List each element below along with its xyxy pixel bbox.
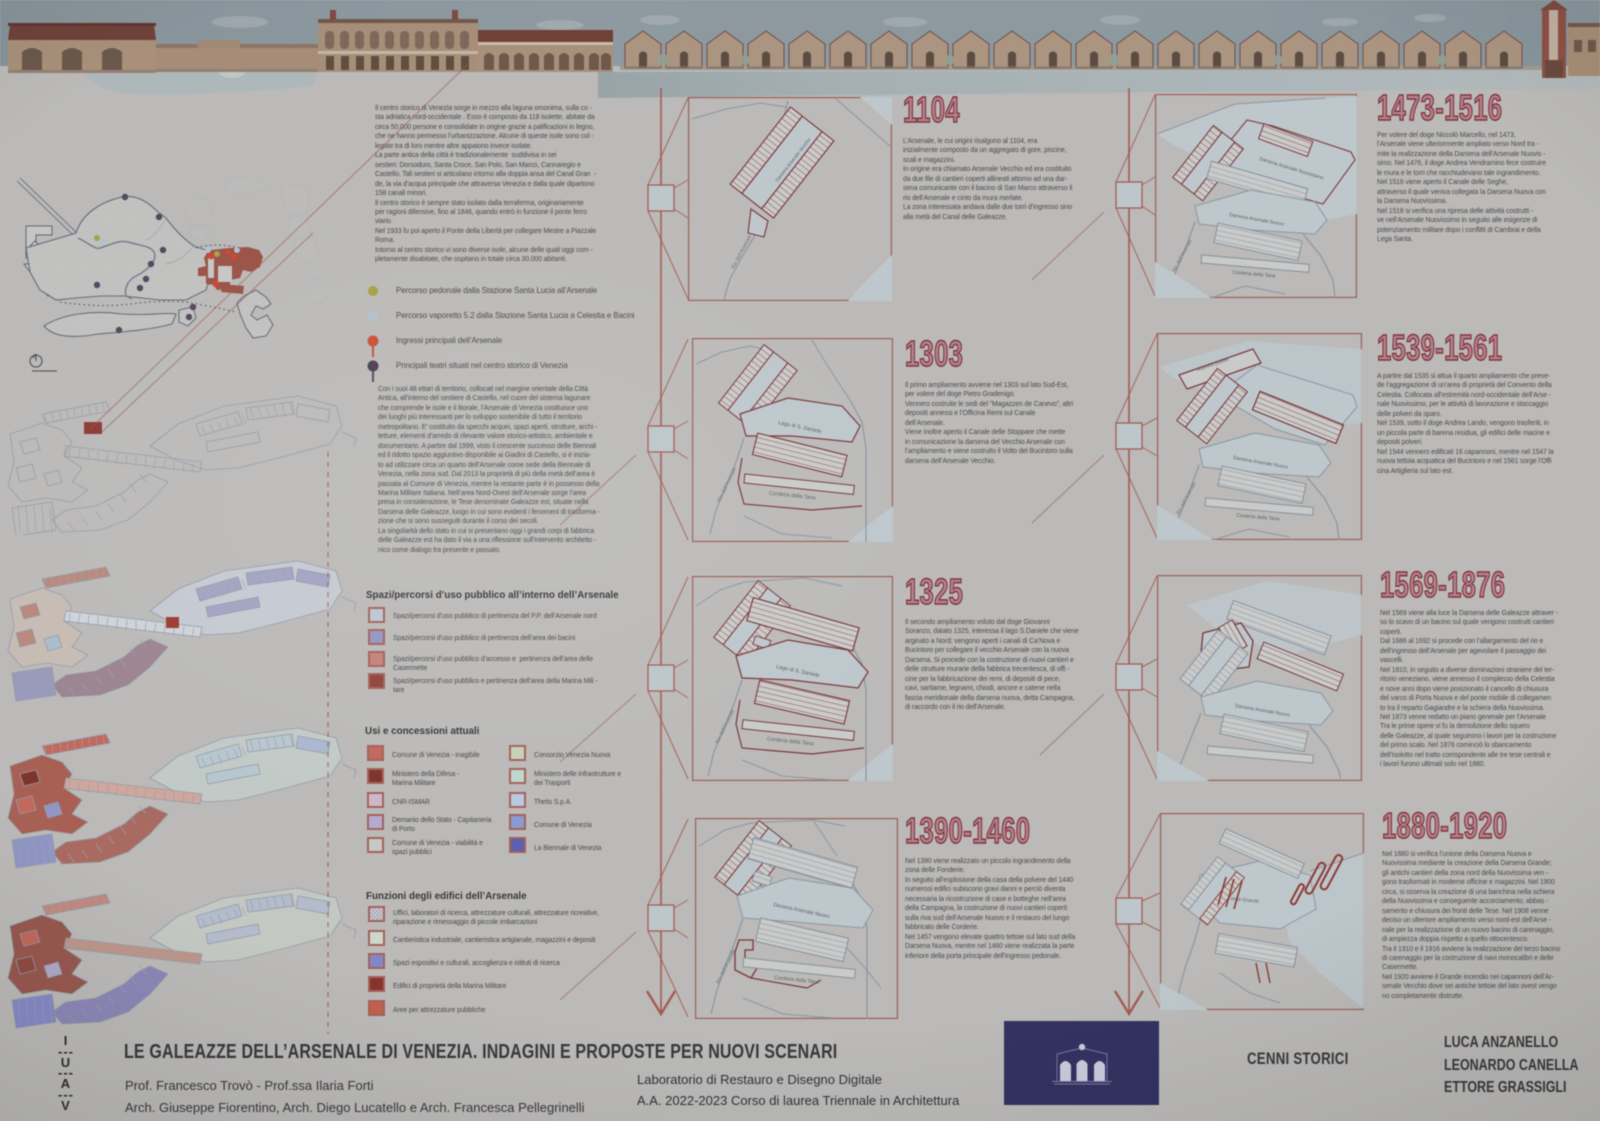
svg-text:Corderia della Tana: Corderia della Tana	[774, 975, 819, 986]
svg-text:Rio dell’Arsenale: Rio dell’Arsenale	[730, 234, 753, 270]
svg-text:Rio dell’Arsenale: Rio dell’Arsenale	[715, 948, 737, 985]
svg-text:Corderia della Tana: Corderia della Tana	[1236, 513, 1280, 523]
svg-text:Corderia della Tana: Corderia della Tana	[1232, 270, 1276, 280]
svg-text:Corderia della Tana: Corderia della Tana	[767, 736, 814, 747]
svg-text:Rio dell’Arsenale: Rio dell’Arsenale	[1175, 481, 1197, 516]
svg-text:Corderia della Tana: Corderia della Tana	[769, 491, 816, 502]
svg-text:Rio dell’Arsenale: Rio dell’Arsenale	[714, 708, 736, 745]
svg-text:Rio dell’Arsenale: Rio dell’Arsenale	[1171, 238, 1193, 273]
svg-text:Rio dell’Arsenale: Rio dell’Arsenale	[716, 466, 738, 503]
